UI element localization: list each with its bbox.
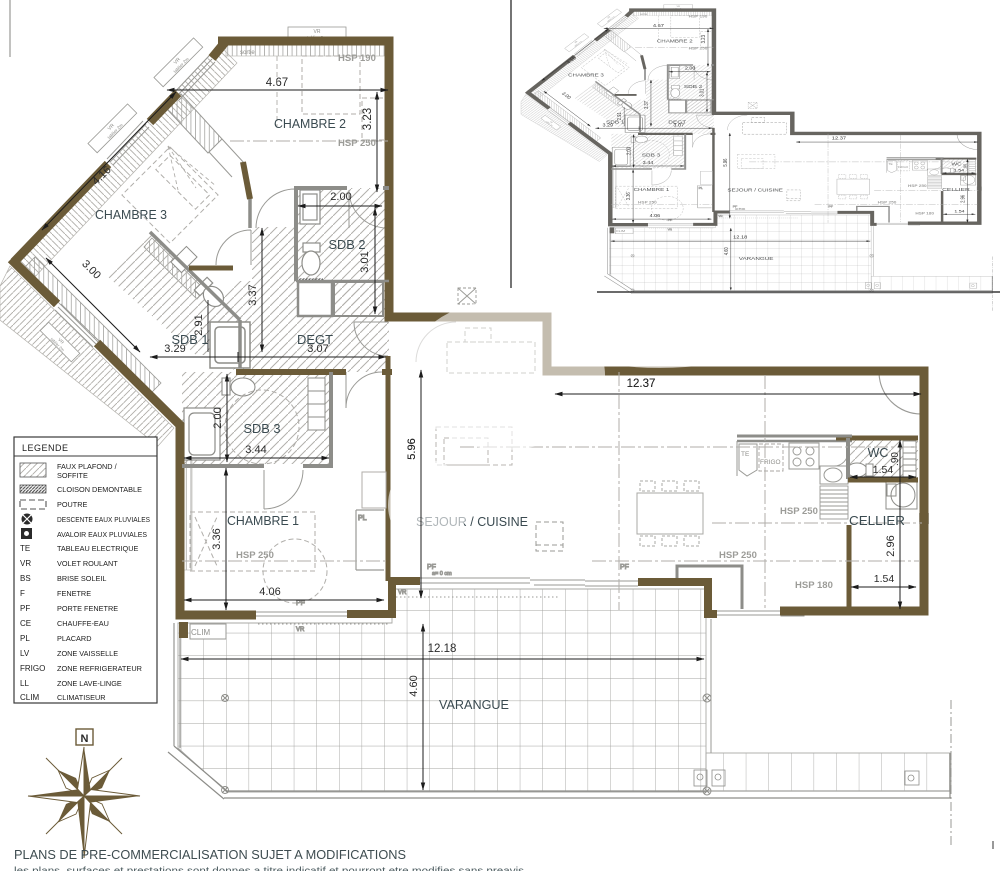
svg-text:DEGT: DEGT — [297, 333, 333, 347]
svg-text:3.37: 3.37 — [247, 284, 259, 305]
svg-text:PORTE FENETRE: PORTE FENETRE — [57, 604, 118, 613]
svg-text:a= 0 cm: a= 0 cm — [432, 571, 452, 577]
svg-text:les plans, surfaces et prestat: les plans, surfaces et prestations sont … — [14, 865, 524, 871]
svg-text:VR: VR — [398, 590, 407, 596]
svg-text:3.23: 3.23 — [362, 108, 374, 130]
svg-text:CLIM: CLIM — [191, 628, 210, 637]
svg-text:HSP 250: HSP 250 — [338, 138, 376, 149]
svg-text:WC: WC — [868, 446, 889, 460]
svg-text:PL: PL — [358, 515, 367, 522]
svg-text:BS: BS — [20, 574, 31, 583]
svg-text:4.06: 4.06 — [259, 586, 280, 598]
svg-text:VR: VR — [296, 627, 305, 633]
svg-text:ZONE LAVE-LINGE: ZONE LAVE-LINGE — [57, 679, 122, 688]
svg-text:PLANS DE PRE-COMMERCIALISATION: PLANS DE PRE-COMMERCIALISATION SUJET A M… — [14, 847, 406, 862]
svg-text:HSP 190: HSP 190 — [338, 53, 376, 64]
svg-text:3.36: 3.36 — [211, 528, 223, 549]
svg-text:CHAMBRE 3: CHAMBRE 3 — [95, 207, 167, 222]
svg-text:N: N — [81, 733, 89, 745]
svg-text:CHAMBRE 1: CHAMBRE 1 — [227, 513, 299, 528]
svg-text:2.96: 2.96 — [885, 535, 897, 556]
svg-text:2.00: 2.00 — [212, 407, 224, 428]
svg-text:SOFFITE: SOFFITE — [57, 471, 88, 480]
svg-text:3.01: 3.01 — [359, 251, 371, 272]
svg-text:CHAUFFE-EAU: CHAUFFE-EAU — [57, 619, 109, 628]
svg-text:SDB 1: SDB 1 — [172, 333, 209, 347]
svg-text:VARANGUE: VARANGUE — [439, 698, 509, 712]
svg-text:HSP 180: HSP 180 — [795, 580, 833, 591]
svg-text:CE: CE — [20, 619, 31, 628]
svg-text:CELLIER: CELLIER — [849, 514, 905, 528]
svg-text:VR: VR — [20, 559, 31, 568]
svg-text:ZONE REFRIGERATEUR: ZONE REFRIGERATEUR — [57, 664, 142, 673]
svg-text:HSP 250: HSP 250 — [236, 550, 274, 561]
svg-text:4.60: 4.60 — [408, 675, 420, 696]
svg-text:TE: TE — [741, 451, 750, 458]
svg-text:PF: PF — [620, 564, 629, 571]
svg-text:PF: PF — [20, 604, 30, 613]
svg-text:ZONE VAISSELLE: ZONE VAISSELLE — [57, 649, 118, 658]
svg-text:CHAMBRE 2: CHAMBRE 2 — [274, 116, 346, 131]
svg-text:LEGENDE: LEGENDE — [22, 443, 69, 453]
svg-text:FRIGO: FRIGO — [760, 459, 781, 466]
svg-text:PF: PF — [427, 564, 436, 571]
svg-text:FENETRE: FENETRE — [57, 589, 91, 598]
svg-text:FRIGO: FRIGO — [20, 664, 45, 673]
svg-text:LL: LL — [20, 679, 29, 688]
svg-text:AVALOIR EAUX PLUVIALES: AVALOIR EAUX PLUVIALES — [57, 530, 147, 539]
svg-text:SDB 2: SDB 2 — [329, 238, 366, 252]
svg-text:PLACARD: PLACARD — [57, 634, 91, 643]
svg-text:PL: PL — [20, 634, 30, 643]
svg-text:POUTRE: POUTRE — [57, 500, 88, 509]
svg-text:HSP 250: HSP 250 — [780, 506, 818, 517]
svg-text:SDB 3: SDB 3 — [244, 422, 281, 436]
svg-text:CLIM: CLIM — [20, 693, 39, 702]
svg-text:sortie: sortie — [240, 50, 255, 56]
svg-text:CLOISON DEMONTABLE: CLOISON DEMONTABLE — [57, 485, 142, 494]
svg-text:TABLEAU ELECTRIQUE: TABLEAU ELECTRIQUE — [57, 544, 138, 553]
svg-text:HSP 250: HSP 250 — [719, 550, 757, 561]
svg-text:FAUX PLAFOND /: FAUX PLAFOND / — [57, 462, 118, 471]
svg-text:LV: LV — [20, 649, 30, 658]
svg-text:PF: PF — [296, 600, 305, 607]
svg-text:CLIMATISEUR: CLIMATISEUR — [57, 693, 106, 702]
svg-text:TE: TE — [20, 544, 30, 553]
svg-text:2.00: 2.00 — [330, 191, 351, 203]
svg-text:.90: .90 — [890, 452, 901, 466]
svg-text:3.44: 3.44 — [245, 444, 266, 456]
svg-text:DESCENTE EAUX PLUVIALES: DESCENTE EAUX PLUVIALES — [57, 515, 150, 524]
svg-text:F: F — [20, 589, 25, 598]
svg-text:VOLET ROULANT: VOLET ROULANT — [57, 559, 118, 568]
svg-text:1.54: 1.54 — [874, 573, 895, 585]
svg-text:12.18: 12.18 — [428, 643, 457, 655]
svg-text:BRISE SOLEIL: BRISE SOLEIL — [57, 574, 106, 583]
